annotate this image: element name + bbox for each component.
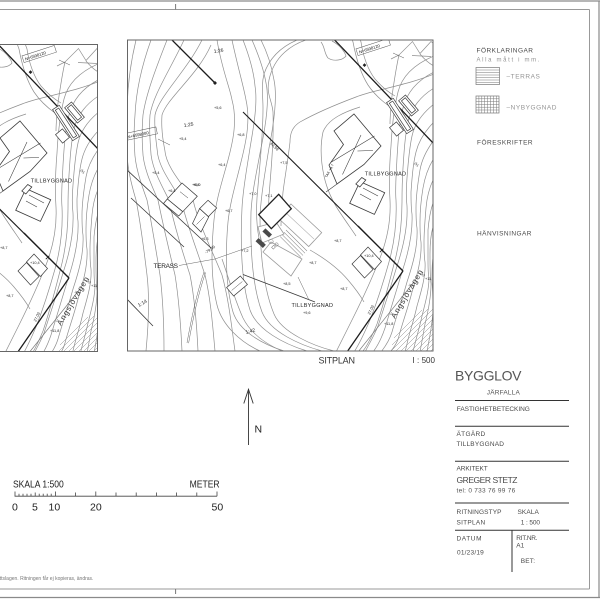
svg-text:TILLBYGGNAD: TILLBYGGNAD: [457, 441, 505, 448]
svg-text:SKALA: SKALA: [518, 509, 540, 516]
svg-text:5: 5: [32, 502, 38, 514]
svg-text:N: N: [255, 424, 263, 436]
svg-text:01/23/19: 01/23/19: [457, 550, 484, 557]
svg-text:Alla mått i mm.: Alla mått i mm.: [477, 57, 540, 64]
svg-text:20: 20: [90, 502, 102, 514]
svg-text:tel: 0 733 76 99 76: tel: 0 733 76 99 76: [457, 488, 516, 495]
svg-text:HÄNVISNINGAR: HÄNVISNINGAR: [477, 230, 532, 238]
svg-text:ARKITEKT: ARKITEKT: [457, 466, 488, 473]
svg-text:RIT.NR.: RIT.NR.: [516, 535, 537, 542]
svg-text:GREGER STETZ: GREGER STETZ: [457, 475, 518, 485]
svg-text:FÖRESKRIFTER: FÖRESKRIFTER: [477, 139, 533, 147]
svg-text:BYGGLOV: BYGGLOV: [455, 368, 522, 384]
svg-text:A1: A1: [516, 543, 524, 550]
svg-text:JÄRFALLA: JÄRFALLA: [487, 389, 521, 397]
svg-text:50: 50: [212, 502, 224, 514]
svg-text:SITPLAN: SITPLAN: [457, 519, 486, 526]
svg-text:FÖRKLARINGAR: FÖRKLARINGAR: [477, 47, 534, 55]
svg-text:DATUM: DATUM: [457, 536, 482, 543]
svg-text:SITPLAN: SITPLAN: [319, 356, 356, 366]
svg-text:RITNINGSTYP: RITNINGSTYP: [457, 509, 502, 516]
svg-text:1 : 500: 1 : 500: [521, 519, 541, 526]
svg-text:ättslagen. Ritningen får ej ko: ättslagen. Ritningen får ej kopieras, än…: [0, 575, 93, 582]
svg-text:10: 10: [49, 502, 61, 514]
svg-text:0: 0: [12, 502, 18, 514]
svg-text:ÄTGÄRD: ÄTGÄRD: [457, 430, 486, 438]
svg-text:–NYBYGGNAD: –NYBYGGNAD: [507, 105, 557, 112]
svg-text:FASTIGHETBETECKING: FASTIGHETBETECKING: [457, 406, 530, 413]
svg-text:I : 500: I : 500: [413, 356, 436, 365]
svg-text:METER: METER: [190, 479, 220, 491]
svg-text:SKALA 1:500: SKALA 1:500: [13, 479, 64, 491]
svg-text:BET:: BET:: [521, 558, 535, 565]
svg-text:–TERRAS: –TERRAS: [507, 74, 541, 81]
